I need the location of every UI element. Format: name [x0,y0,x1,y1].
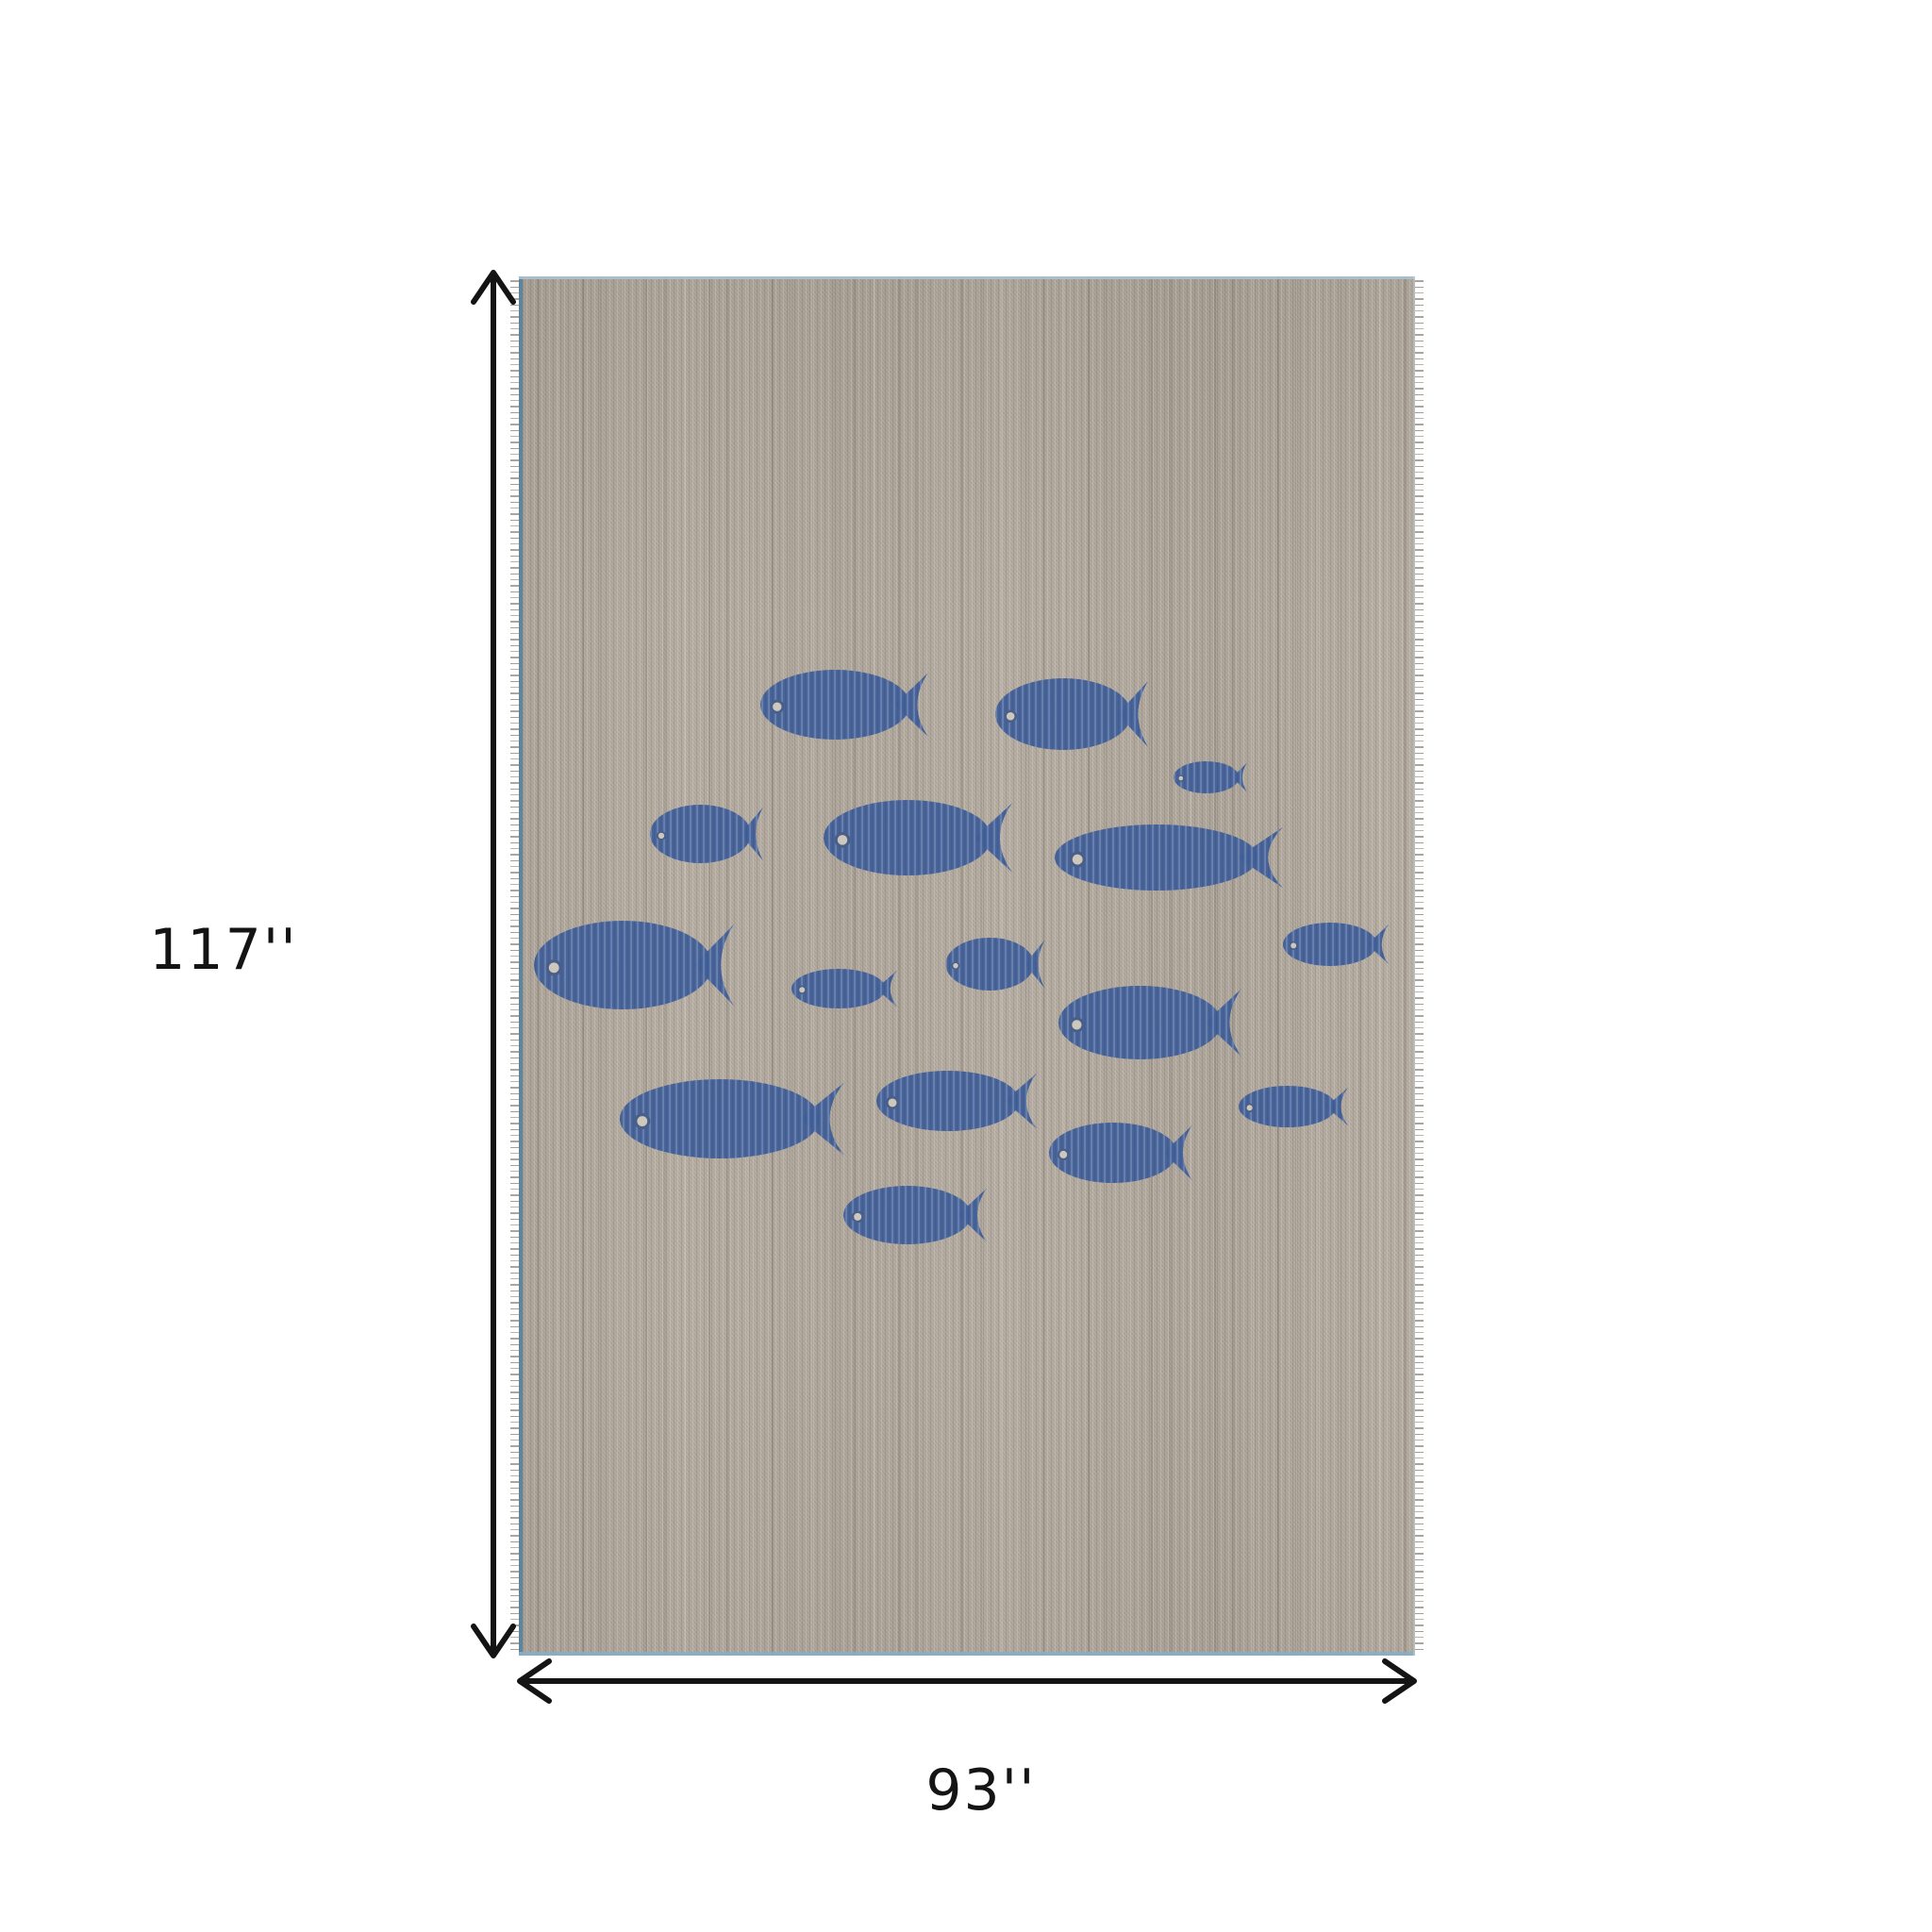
fish-motif [1174,761,1247,793]
fish-motif [1239,1086,1348,1127]
fish-motif [1049,1123,1192,1183]
fish-motif [1283,923,1389,966]
fish-motif [620,1079,844,1158]
fish-motif [791,969,897,1008]
fish-motif [650,805,763,863]
rug-fringe-right [1415,280,1424,1652]
width-arrow-head-left [520,1661,549,1701]
fish-motif [824,800,1012,875]
fish-motif [534,921,734,1009]
rug-image [519,276,1415,1656]
fish-motif [995,678,1148,750]
product-dimension-diagram: 117'' 93'' [0,0,1932,1932]
width-arrow-head-right [1385,1661,1414,1701]
fish-motif [1058,986,1241,1059]
width-dimension-label: 93'' [884,1762,1078,1819]
height-arrow-head-top [474,273,513,302]
fish-motif [876,1071,1037,1131]
fish-motif [760,670,928,740]
fish-motif [843,1186,987,1244]
rug-fringe-left [510,280,519,1652]
height-dimension-label: 117'' [126,922,321,978]
fish-motif [1055,824,1283,891]
fish-pattern [519,276,1415,1656]
height-arrow-head-bottom [474,1626,513,1656]
fish-motif [946,938,1045,991]
